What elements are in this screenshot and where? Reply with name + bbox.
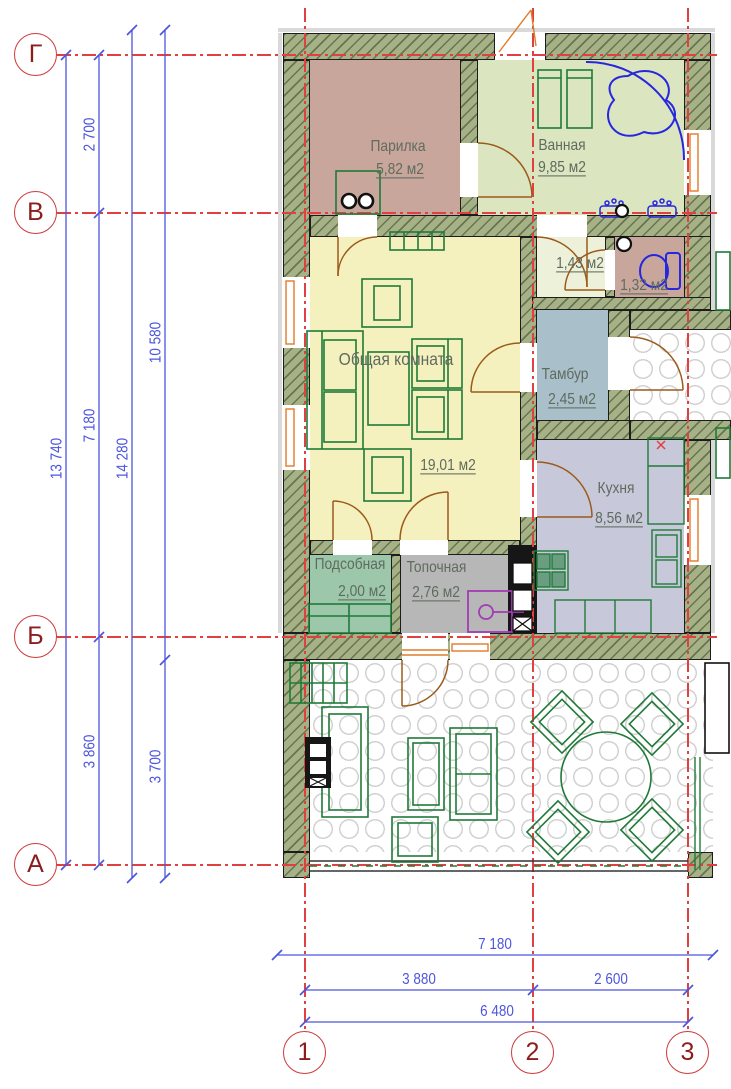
- area-vannaya: 9,85 м2: [530, 159, 594, 177]
- eave-strip-top: [278, 28, 715, 32]
- axis-marker-V: В: [14, 191, 57, 234]
- wall-top-left: [283, 33, 495, 60]
- top-opening-gap: [495, 33, 545, 60]
- area-tambur: 2,45 м2: [540, 391, 604, 409]
- dim-7180-left: 7 180: [81, 390, 99, 462]
- axis-line-B: [57, 636, 717, 638]
- room-kuhnya: [537, 440, 684, 633]
- axis-line-1: [304, 8, 306, 1032]
- wall-porch-top: [630, 310, 731, 330]
- room-obshchaya: [310, 237, 520, 540]
- window-left-2: [283, 405, 310, 470]
- axis-marker-2: 2: [511, 1031, 554, 1074]
- porch-paving: [630, 330, 731, 420]
- floor-plan-canvas: Парилка 5,82 м2 Ванная 9,85 м2 1,43 м2 1…: [0, 0, 731, 1089]
- wall-kitchen-top: [537, 420, 630, 440]
- dim-7180-bottom: 7 180: [459, 936, 531, 954]
- axis-marker-A: А: [14, 843, 57, 886]
- label-obshchaya: Общая комната: [336, 350, 456, 371]
- label-tambur: Тамбур: [528, 366, 602, 384]
- door-gap-tambour-porch: [608, 337, 630, 390]
- wall-left-terrace: [283, 660, 310, 852]
- door-gap-bath-lobby: [537, 215, 587, 237]
- area-wc-lobby: 1,43 м2: [548, 255, 612, 273]
- dim-6480: 6 480: [461, 1003, 533, 1021]
- dim-10580: 10 580: [147, 307, 165, 379]
- door-gap-parilka: [338, 215, 377, 237]
- window-left-1: [283, 277, 310, 348]
- axis-marker-G: Г: [14, 33, 57, 76]
- area-wc: 1,32 м2: [612, 277, 676, 295]
- axis-line-V: [57, 212, 717, 214]
- area-podsobnaya: 2,00 м2: [330, 583, 394, 601]
- eave-strip-left: [278, 33, 282, 633]
- dim-2700: 2 700: [81, 99, 99, 171]
- dim-3700: 3 700: [147, 731, 165, 803]
- wall-porch-bottom: [630, 420, 731, 440]
- label-podsobnaya: Подсобная: [304, 556, 396, 574]
- door-gap-podsobnaya: [333, 540, 372, 555]
- axis-line-3: [687, 8, 689, 1032]
- label-vannaya: Ванная: [516, 137, 608, 155]
- axis-marker-3: 3: [666, 1031, 709, 1074]
- area-topochnaya: 2,76 м2: [404, 584, 468, 602]
- label-topochnaya: Топочная: [393, 559, 480, 577]
- dim-14280: 14 280: [114, 423, 132, 495]
- label-parilka: Парилка: [347, 138, 448, 156]
- terrace-paving: [310, 660, 713, 852]
- axis-marker-1: 1: [283, 1031, 326, 1074]
- dim-2600: 2 600: [575, 971, 647, 989]
- axis-line-G: [57, 54, 717, 56]
- dim-13740: 13 740: [48, 423, 66, 495]
- door-gap-living-kitchen: [520, 460, 537, 517]
- dim-3860: 3 860: [81, 716, 99, 788]
- wall-lobby-bottom: [532, 297, 711, 310]
- area-kuhnya: 8,56 м2: [587, 510, 651, 528]
- label-kuhnya: Кухня: [579, 480, 653, 498]
- axis-line-A: [57, 864, 717, 866]
- area-obshchaya: 19,01 м2: [416, 457, 480, 475]
- door-gap-topochnaya: [400, 540, 448, 555]
- axis-marker-B: Б: [14, 615, 57, 658]
- door-gap-parilka-bath: [460, 143, 478, 197]
- dim-3880: 3 880: [383, 971, 455, 989]
- area-parilka: 5,82 м2: [368, 161, 432, 179]
